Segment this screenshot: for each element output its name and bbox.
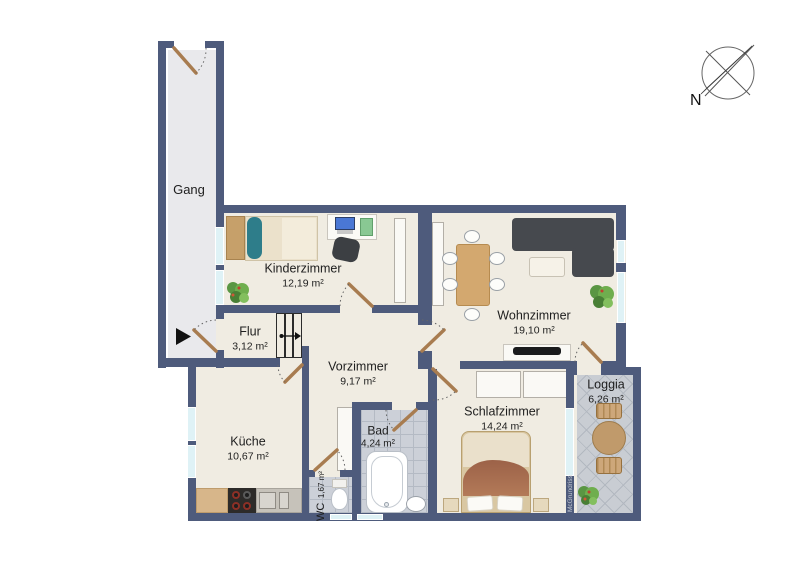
window [215,227,224,265]
room-name: WC [315,503,327,521]
wall [566,375,574,408]
wall [224,305,340,313]
compass-north-label: N [690,92,702,109]
tv-icon [513,347,561,355]
wall [302,358,309,521]
laptop-icon [335,217,355,230]
sink-basin-icon [259,492,276,509]
stairs-icon [276,313,302,358]
wall [158,41,166,368]
burner-icon [232,502,240,510]
room-area: 12,19 m² [264,277,341,290]
room-name: Flur [232,325,268,341]
chair-icon [464,308,480,321]
sink-basin-icon [279,492,289,509]
patio-table-icon [592,421,626,455]
window [330,514,352,520]
wall [158,41,174,48]
wall [566,476,574,513]
window [357,514,383,520]
wall [418,213,432,325]
chair-icon [442,252,458,265]
chair-icon [464,230,480,243]
wall [418,361,432,369]
bed-blanket-icon [247,217,262,259]
room-name: Küche [227,435,268,451]
wall [188,513,641,521]
wall [216,305,224,319]
chair-icon [489,278,505,291]
stair-step-line [284,314,286,357]
wall [616,263,626,272]
room-area: 10,67 m² [227,450,268,463]
room-name: Wohnzimmer [497,309,570,325]
pillow-icon [497,495,524,511]
nightstand-icon [533,498,549,512]
room-name: Loggia [587,378,625,394]
toilet-tank-icon [332,479,347,488]
room-label-schlafzimmer: Schlafzimmer 14,24 m² [464,405,540,434]
gang-floor [166,48,216,360]
room-label-kueche: Küche 10,67 m² [227,435,268,464]
room-area: 1,67 m² [317,471,326,498]
wall [205,41,224,48]
bed-blanket-icon [463,460,529,496]
window [617,272,625,323]
wall [158,358,280,367]
wall [302,346,309,358]
compass-needle-icon [701,46,752,94]
shelf-icon [432,222,444,306]
wardrobe-icon [394,218,406,303]
wall [633,367,641,521]
coffee-table-icon [529,257,565,277]
room-name: Vorzimmer [328,360,388,376]
window [617,240,625,263]
wall [188,360,196,407]
drain-icon [384,502,389,507]
bed-sheet-icon [282,218,316,259]
room-label-wohnzimmer: Wohnzimmer 19,10 m² [497,309,570,338]
pillow-icon [467,495,494,512]
patio-chair-icon [596,457,622,474]
chair-icon [442,278,458,291]
wall [460,361,577,369]
window [187,445,196,478]
room-label-kinderzimmer: Kinderzimmer 12,19 m² [264,262,341,291]
room-name: Kinderzimmer [264,262,341,278]
nightstand-icon [443,498,459,512]
burner-icon [243,491,251,499]
cabinet-icon [337,407,353,471]
compass-icon: N [690,45,754,109]
room-label-gang: Gang [173,182,205,198]
wall [216,213,224,227]
wall [616,213,626,240]
window [215,270,224,305]
wall [428,369,437,513]
room-area: 6,26 m² [587,393,625,406]
room-label-wc: WC 1,67 m² [311,471,329,521]
toilet-icon [331,488,348,510]
dining-table-icon [456,244,490,306]
wall [352,402,392,410]
room-label-loggia: Loggia 6,26 m² [587,378,625,407]
window [565,408,574,476]
wall [416,402,428,410]
window [187,407,196,441]
wall [340,470,352,477]
wall [216,48,224,205]
room-name: Bad [361,423,395,438]
room-area: 4,24 m² [361,438,395,451]
wardrobe-icon [476,371,521,398]
burner-icon [232,491,240,499]
chair-icon [489,252,505,265]
wall [216,205,626,213]
room-area: 3,12 m² [232,340,268,353]
sofa-icon [512,218,614,251]
room-name: Schlafzimmer [464,405,540,421]
bed-headboard-icon [226,216,245,260]
bathroom-sink-icon [406,496,426,512]
room-area: 19,10 m² [497,324,570,337]
room-label-flur: Flur 3,12 m² [232,325,268,354]
sofa-chaise-icon [572,248,614,277]
wardrobe-icon [523,371,568,398]
burner-icon [243,502,251,510]
wall [352,402,361,521]
kitchen-counter-icon [196,488,228,513]
room-label-bad: Bad 4,24 m² [361,423,395,451]
wall [372,305,418,313]
laptop-keyboard-icon [337,230,353,234]
mousepad-icon [360,218,373,236]
room-label-vorzimmer: Vorzimmer 9,17 m² [328,360,388,389]
wall [566,361,577,375]
bathtub-inner-icon [371,456,403,508]
room-area: 9,17 m² [328,375,388,388]
stair-step-line [292,314,294,357]
room-name: Gang [173,182,205,198]
floor-plan: N McGrundriss Gang Kinderzimmer 12,19 m²… [0,0,800,565]
wall [418,351,432,361]
room-area: 14,24 m² [464,420,540,433]
